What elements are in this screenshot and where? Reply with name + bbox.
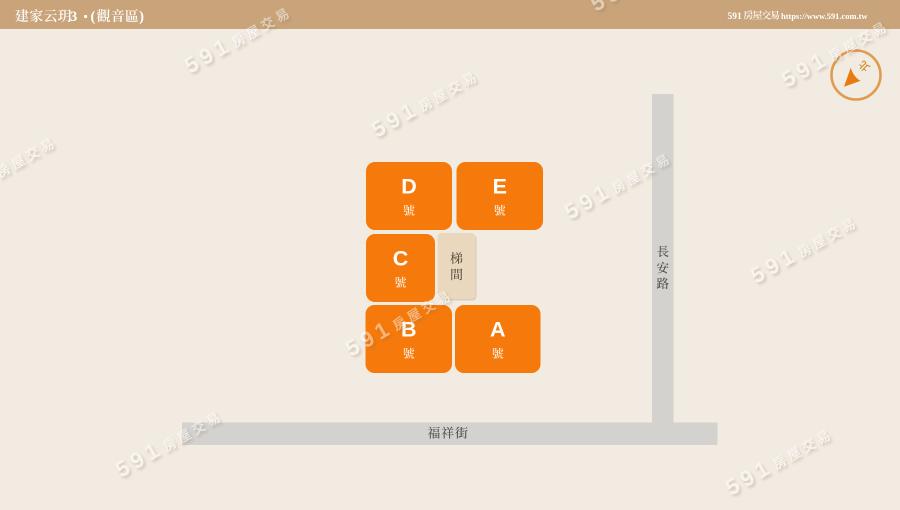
svg-text:3: 3: [70, 9, 77, 25]
svg-text:591: 591: [728, 12, 743, 22]
svg-text:A: A: [490, 318, 506, 342]
svg-text:(: (: [91, 9, 96, 25]
svg-text:): ): [139, 9, 144, 25]
svg-text:https://www.591.com.tw: https://www.591.com.tw: [781, 11, 868, 21]
svg-text:E: E: [493, 175, 507, 199]
svg-text:D: D: [401, 175, 417, 199]
svg-text:C: C: [393, 247, 409, 271]
